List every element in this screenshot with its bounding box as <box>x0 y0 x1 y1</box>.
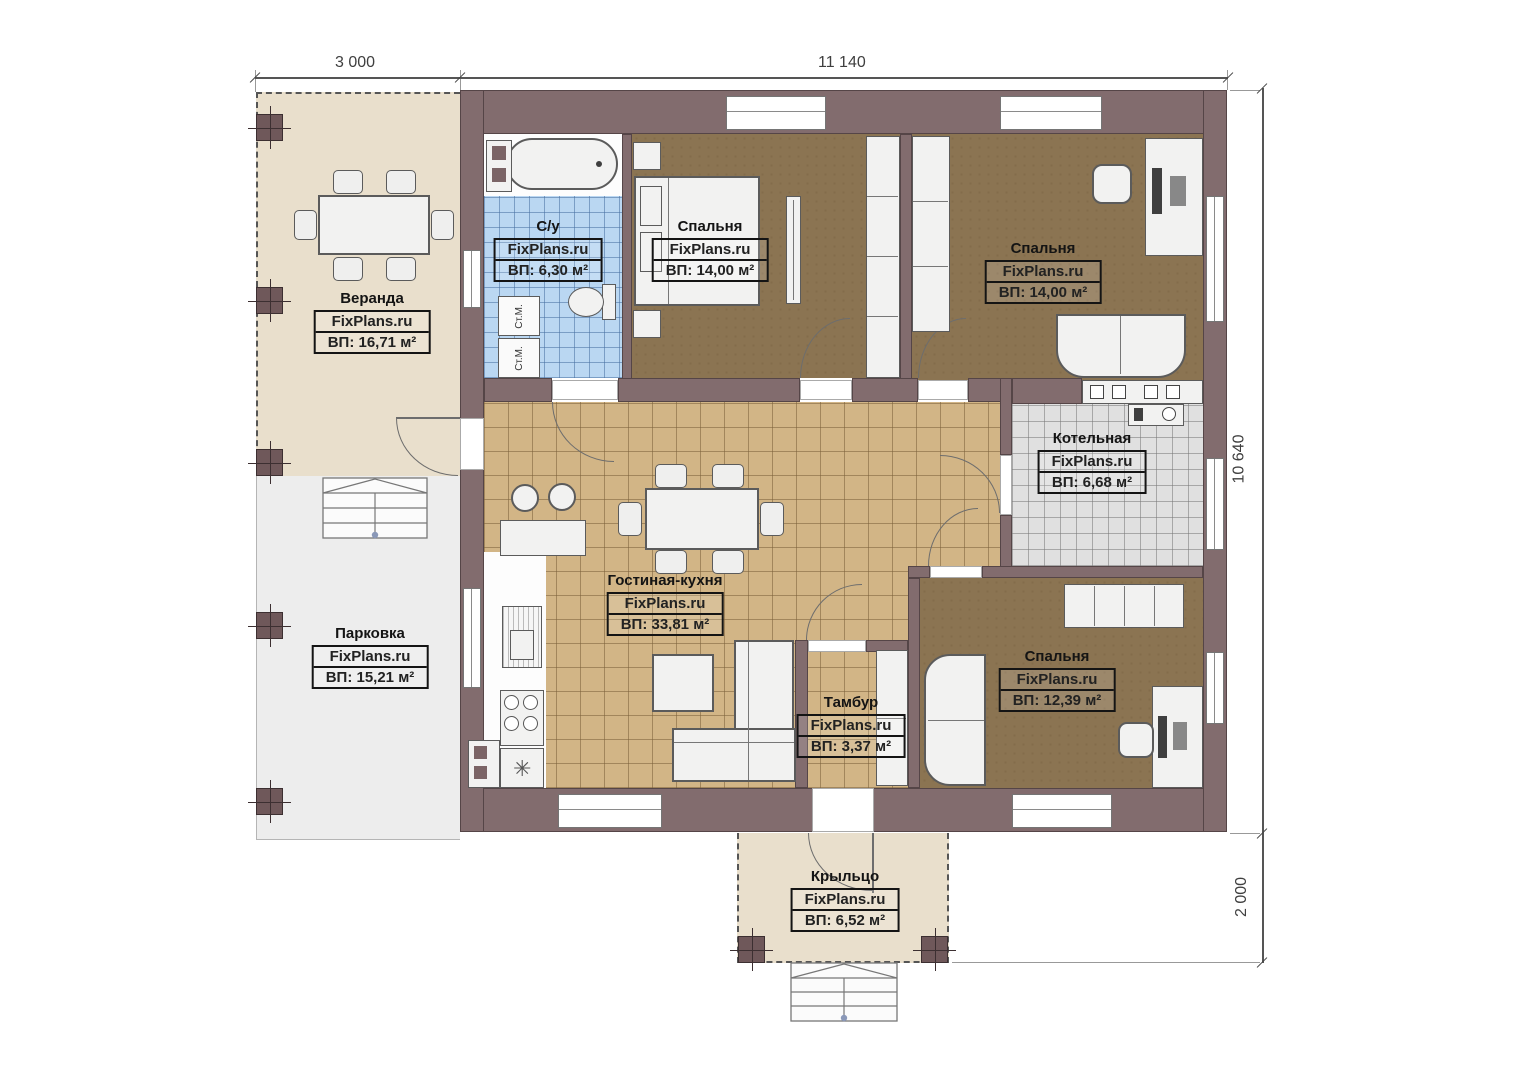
cabinet-box <box>474 766 487 779</box>
washing-machine: Ст.М. <box>498 296 540 336</box>
boiler-switch <box>1134 408 1143 421</box>
chair <box>386 257 416 281</box>
cabinet-box <box>492 168 506 182</box>
burner <box>504 695 519 710</box>
room-label-bedroom1: Спальня FixPlans.ru ВП: 14,00 м² <box>652 218 769 282</box>
room-area: ВП: 12,39 м² <box>1001 691 1114 710</box>
wall-tambur-right <box>908 578 920 788</box>
column <box>256 114 283 141</box>
room-area: ВП: 33,81 м² <box>609 615 722 634</box>
window <box>726 96 826 130</box>
chair <box>712 550 744 574</box>
fridge-inner <box>510 630 534 660</box>
room-name: Тамбур <box>797 694 906 711</box>
wardrobe-divider <box>1094 586 1095 626</box>
sofa-divider <box>1120 316 1121 374</box>
bar-stool <box>548 483 576 511</box>
room-name: Гостиная-кухня <box>607 572 724 589</box>
wardrobe <box>912 136 950 332</box>
dim-extension <box>952 962 1260 963</box>
wall-bed1-bed2 <box>900 134 912 380</box>
dim-extension <box>1230 90 1260 91</box>
label-box: FixPlans.ru ВП: 6,68 м² <box>1038 450 1147 494</box>
bar-stool <box>511 484 539 512</box>
column <box>256 449 283 476</box>
door-opening-veranda <box>460 418 484 470</box>
label-box: FixPlans.ru ВП: 6,52 м² <box>791 888 900 932</box>
chair <box>712 464 744 488</box>
wall-bed3-top <box>908 566 930 578</box>
room-area: ВП: 16,71 м² <box>316 333 429 352</box>
room-area: ВП: 15,21 м² <box>314 668 427 687</box>
wall-bed2-boiler <box>1012 378 1082 404</box>
column <box>256 612 283 639</box>
burner <box>523 716 538 731</box>
chair <box>655 550 687 574</box>
wardrobe-divider <box>913 201 948 202</box>
floor-plan-canvas: 3 000 11 140 10 640 2 000 <box>0 0 1528 1080</box>
door-opening-bedroom2 <box>918 380 968 400</box>
window <box>558 794 662 828</box>
wardrobe-divider <box>1124 586 1125 626</box>
counter-box <box>1090 385 1104 399</box>
watermark: FixPlans.ru <box>1040 452 1145 473</box>
bathtub-faucet <box>596 161 602 167</box>
keyboard <box>1173 722 1187 750</box>
label-box: FixPlans.ru ВП: 12,39 м² <box>999 668 1116 712</box>
room-label-bedroom3: Спальня FixPlans.ru ВП: 12,39 м² <box>999 648 1116 712</box>
counter-box <box>1166 385 1180 399</box>
watermark: FixPlans.ru <box>496 240 601 261</box>
keyboard <box>1170 176 1186 206</box>
column <box>256 788 283 815</box>
window <box>1000 96 1102 130</box>
wardrobe-divider <box>867 196 898 197</box>
window <box>463 588 481 688</box>
computer-monitor <box>1158 716 1167 758</box>
window <box>1206 652 1224 724</box>
watermark: FixPlans.ru <box>799 716 904 737</box>
door-opening-porch <box>812 788 874 832</box>
cabinet-box <box>492 146 506 160</box>
veranda-steps <box>322 477 428 539</box>
washer-label: Ст.М. <box>514 346 525 371</box>
washer-label: Ст.М. <box>514 304 525 329</box>
watermark: FixPlans.ru <box>654 240 767 261</box>
wall-boiler-left <box>1000 378 1012 455</box>
dim-extension <box>460 70 461 90</box>
toilet-tank <box>602 284 616 320</box>
dim-extension <box>1230 833 1260 834</box>
watermark: FixPlans.ru <box>793 890 898 911</box>
column <box>738 936 765 963</box>
wardrobe-divider <box>867 256 898 257</box>
chair <box>655 464 687 488</box>
room-name: С/у <box>494 218 603 235</box>
column <box>921 936 948 963</box>
sofa-divider <box>928 720 984 721</box>
door-opening-bedroom3 <box>930 566 982 578</box>
room-area: ВП: 14,00 м² <box>654 261 767 280</box>
room-area: ВП: 6,30 м² <box>496 261 601 280</box>
watermark: FixPlans.ru <box>316 312 429 333</box>
door-opening-boiler <box>1000 455 1012 515</box>
wall-mid <box>852 378 918 402</box>
wall-mid <box>484 378 552 402</box>
dim-right-bottom-label: 2 000 <box>1233 877 1251 917</box>
label-box: FixPlans.ru ВП: 14,00 м² <box>652 238 769 282</box>
desk-chair <box>1118 722 1154 758</box>
label-box: FixPlans.ru ВП: 15,21 м² <box>312 645 429 689</box>
room-label-parking: Парковка FixPlans.ru ВП: 15,21 м² <box>312 625 429 689</box>
label-box: FixPlans.ru ВП: 14,00 м² <box>985 260 1102 304</box>
sofa <box>1056 314 1186 378</box>
dim-line-top <box>255 77 1228 79</box>
room-label-boiler: Котельная FixPlans.ru ВП: 6,68 м² <box>1038 430 1147 494</box>
veranda-table <box>318 195 430 255</box>
desk-chair <box>1092 164 1132 204</box>
room-name: Котельная <box>1038 430 1147 447</box>
wardrobe-divider <box>1154 586 1155 626</box>
room-area: ВП: 14,00 м² <box>987 283 1100 302</box>
wall-mid <box>618 378 800 402</box>
chair <box>431 210 454 240</box>
wall-bath-bed1 <box>622 134 632 380</box>
chair <box>333 170 363 194</box>
dim-right-top-label: 10 640 <box>1230 435 1248 484</box>
room-label-bedroom2: Спальня FixPlans.ru ВП: 14,00 м² <box>985 240 1102 304</box>
watermark: FixPlans.ru <box>314 647 427 668</box>
washing-machine: Ст.М. <box>498 338 540 378</box>
dim-top-left-label: 3 000 <box>335 54 375 72</box>
porch-steps <box>790 962 898 1022</box>
wardrobe-divider <box>867 316 898 317</box>
wall-bed3-top <box>982 566 1203 578</box>
toilet-bowl <box>568 287 604 317</box>
watermark: FixPlans.ru <box>1001 670 1114 691</box>
label-box: FixPlans.ru ВП: 16,71 м² <box>314 310 431 354</box>
window <box>1012 794 1112 828</box>
room-name: Веранда <box>314 290 431 307</box>
door-opening-tambur <box>808 640 866 652</box>
label-box: FixPlans.ru ВП: 3,37 м² <box>797 714 906 758</box>
dining-table <box>645 488 759 550</box>
room-area: ВП: 6,52 м² <box>793 911 898 930</box>
label-box: FixPlans.ru ВП: 6,30 м² <box>494 238 603 282</box>
dim-extension <box>1227 70 1228 90</box>
room-name: Парковка <box>312 625 429 642</box>
wardrobe <box>866 136 900 378</box>
sofa-seat-line <box>674 742 794 743</box>
door-opening-bedroom1 <box>800 380 852 400</box>
sink-icon: ✳ <box>513 756 531 782</box>
chair <box>333 257 363 281</box>
counter-box <box>1112 385 1126 399</box>
boiler-sink <box>1162 407 1176 421</box>
nightstand <box>633 142 661 170</box>
chair <box>294 210 317 240</box>
chair <box>760 502 784 536</box>
room-label-porch: Крыльцо FixPlans.ru ВП: 6,52 м² <box>791 868 900 932</box>
counter-box <box>1144 385 1158 399</box>
cabinet-box <box>474 746 487 759</box>
watermark: FixPlans.ru <box>987 262 1100 283</box>
room-label-veranda: Веранда FixPlans.ru ВП: 16,71 м² <box>314 290 431 354</box>
room-name: Спальня <box>985 240 1102 257</box>
room-area: ВП: 6,68 м² <box>1040 473 1145 492</box>
room-label-bathroom: С/у FixPlans.ru ВП: 6,30 м² <box>494 218 603 282</box>
room-area: ВП: 3,37 м² <box>799 737 904 756</box>
mirror-line <box>793 200 794 300</box>
room-name: Крыльцо <box>791 868 900 885</box>
room-name: Спальня <box>999 648 1116 665</box>
dim-extension <box>255 70 256 92</box>
door-opening-bathroom <box>552 380 618 400</box>
chair <box>386 170 416 194</box>
column <box>256 287 283 314</box>
room-label-living: Гостиная-кухня FixPlans.ru ВП: 33,81 м² <box>607 572 724 636</box>
window <box>463 250 481 308</box>
sofa-seat-line <box>748 642 749 780</box>
burner <box>523 695 538 710</box>
window <box>1206 458 1224 550</box>
room-label-tambur: Тамбур FixPlans.ru ВП: 3,37 м² <box>797 694 906 758</box>
kitchen-counter <box>500 520 586 556</box>
room-name: Спальня <box>652 218 769 235</box>
chair <box>618 502 642 536</box>
wall-top <box>460 90 1227 134</box>
computer-monitor <box>1152 168 1162 214</box>
watermark: FixPlans.ru <box>609 594 722 615</box>
coffee-table <box>652 654 714 712</box>
sofa-l-horizontal <box>672 728 796 782</box>
wardrobe-divider <box>913 266 948 267</box>
dim-top-right-label: 11 140 <box>818 54 866 72</box>
label-box: FixPlans.ru ВП: 33,81 м² <box>607 592 724 636</box>
burner <box>504 716 519 731</box>
window <box>1206 196 1224 322</box>
nightstand <box>633 310 661 338</box>
